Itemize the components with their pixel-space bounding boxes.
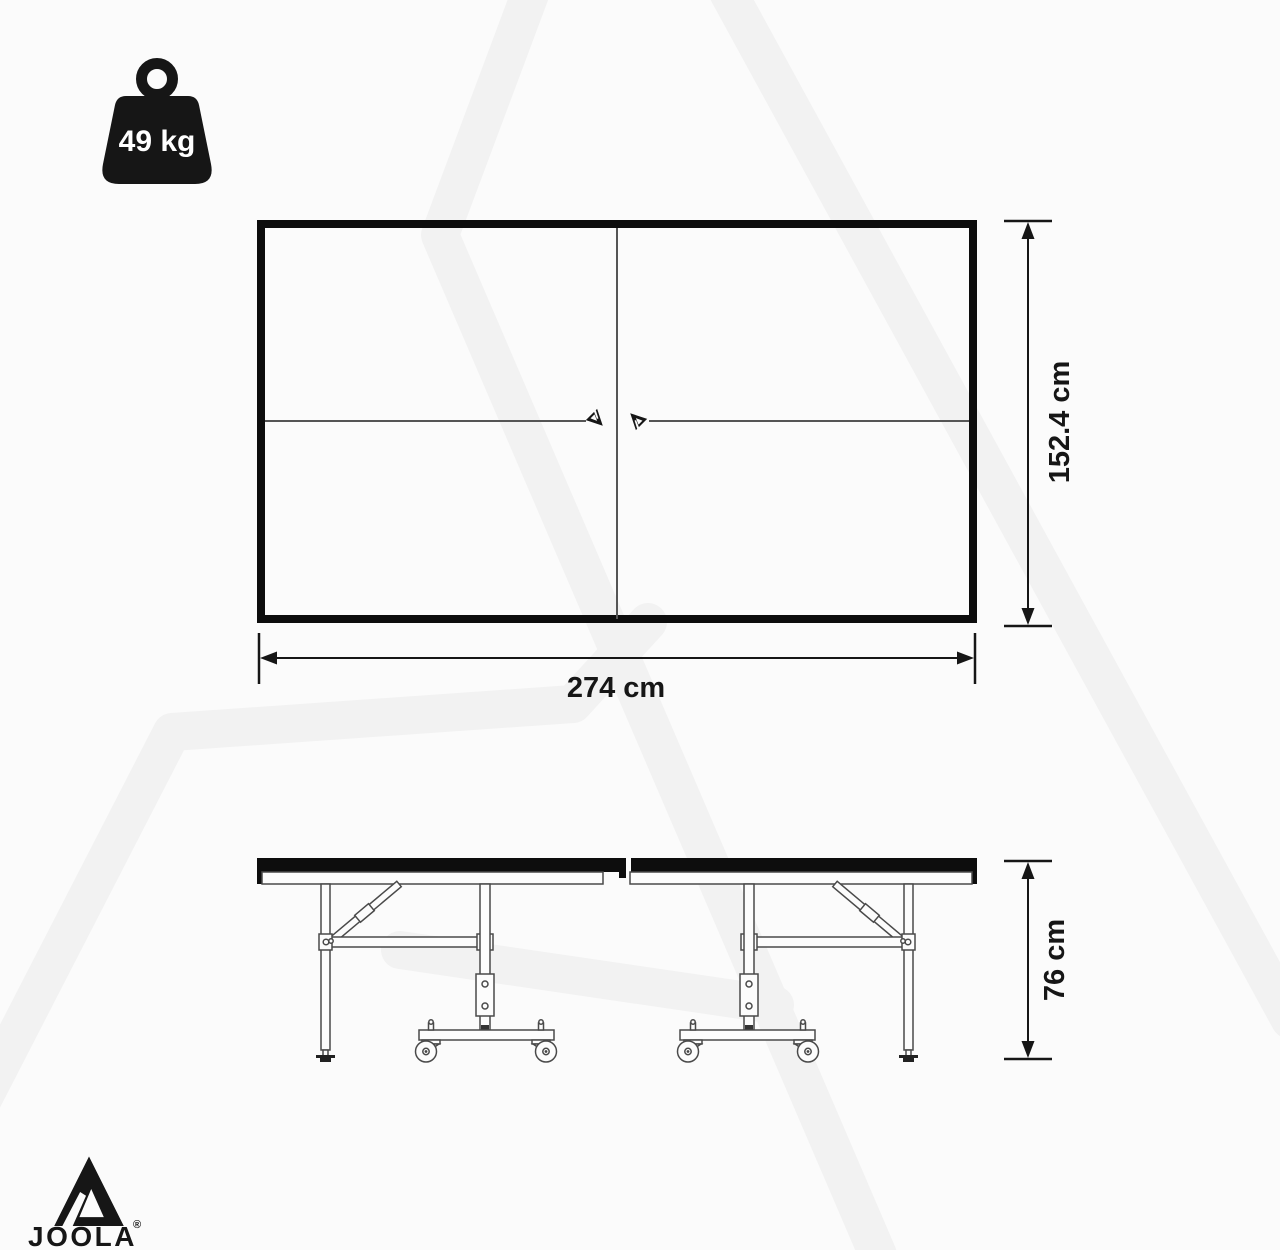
- table-width-label: 274 cm: [567, 672, 665, 704]
- kettlebell-weight-icon: [102, 64, 211, 185]
- left-brace-turnbuckle: [355, 904, 375, 923]
- caster-wheel: [416, 1040, 441, 1062]
- joola-triangle-icon: [54, 1156, 124, 1226]
- side-apron: [262, 872, 972, 884]
- standing-height-label: 76 cm: [1039, 919, 1071, 1001]
- table-height-label: 152.4 cm: [1044, 361, 1076, 484]
- caster-wheel: [532, 1040, 557, 1062]
- left-outer-leg: [321, 884, 330, 1050]
- product-dimension-diagram: 49 kg 274 cm 152.4 cm: [0, 0, 1280, 1250]
- joola-logo: JOOLA ®: [28, 1156, 141, 1250]
- weight-label: 49 kg: [119, 125, 196, 158]
- joola-wordmark: JOOLA: [28, 1221, 137, 1250]
- registered-trademark: ®: [133, 1219, 141, 1231]
- caster-wheel: [678, 1040, 703, 1062]
- dimension-standing-height: 76 cm: [1004, 861, 1071, 1059]
- joola-triangle-mini-icon-left: [586, 409, 609, 432]
- left-crossbar: [324, 937, 489, 947]
- right-wheel-base: [680, 1030, 815, 1040]
- left-wheel-base: [419, 1030, 554, 1040]
- joola-watermark-icon: [0, 0, 1280, 1250]
- right-brace-turnbuckle: [860, 904, 880, 923]
- joola-triangle-mini-icon-right: [625, 408, 648, 431]
- table-side-view: [257, 858, 977, 1062]
- right-crossbar: [745, 937, 910, 947]
- right-outer-leg: [904, 884, 913, 1050]
- weight-badge: 49 kg: [102, 64, 211, 185]
